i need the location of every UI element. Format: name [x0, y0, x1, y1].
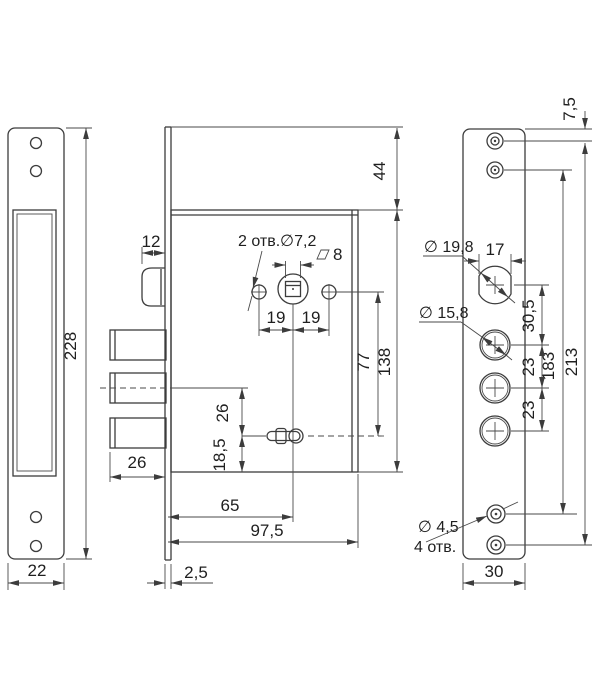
dim-label-65: 65 — [221, 496, 240, 515]
dim-label-2-5: 2,5 — [184, 563, 208, 582]
fixing-hole-right — [321, 284, 337, 300]
dim-top-offset-44: 44 — [370, 128, 397, 210]
plate-recess-inner — [17, 214, 52, 471]
screw-hole — [31, 541, 42, 552]
dim-top-hole-offset: 7,5 — [560, 97, 585, 129]
spindle-square-hole — [278, 274, 308, 304]
dim-span-outer-213: 213 — [562, 143, 585, 545]
dim-label-19-left: 19 — [267, 308, 286, 327]
dim-label-23a: 23 — [519, 358, 538, 377]
callout-screw-holes: ∅ 4,5 4 отв. — [414, 502, 518, 556]
top-screw-hole-1 — [487, 133, 503, 149]
dim-plate-height: 228 — [61, 128, 92, 559]
dim-label-26-throw: 26 — [128, 453, 147, 472]
round-hole-2 — [480, 373, 510, 403]
dim-label-8: 8 — [333, 245, 342, 264]
callout-label-19-8: ∅ 19,8 — [424, 239, 474, 256]
keyhole — [267, 429, 303, 444]
dim-backset-65: 65 — [168, 496, 293, 517]
front-plate-view: 228 22 — [8, 128, 92, 590]
dim-label-44: 44 — [370, 162, 389, 181]
callout-label-15-8: ∅ 15,8 — [419, 305, 469, 322]
screw-hole — [31, 138, 42, 149]
dim-label-17: 17 — [486, 240, 505, 259]
dim-label-77: 77 — [354, 353, 373, 372]
dim-bolt-throw: 26 — [110, 452, 165, 482]
dim-label-23b: 23 — [519, 401, 538, 420]
screw-hole — [31, 512, 42, 523]
screw-hole — [31, 166, 42, 177]
top-screw-hole-2 — [487, 162, 503, 178]
dim-cylinder-pitch-30-5: 30,5 — [519, 285, 542, 345]
dim-latch-protrusion: 12 — [142, 232, 165, 264]
bottom-screw-hole-2 — [487, 536, 505, 554]
bottom-screw-hole-1 — [487, 505, 505, 523]
dim-label-19-right: 19 — [302, 308, 321, 327]
dim-back-plate-width: 30 — [463, 562, 525, 590]
dim-label-22: 22 — [28, 561, 47, 580]
callout-label-4otv: 4 отв. — [414, 539, 456, 556]
plate-recess-outer — [13, 210, 56, 476]
dim-hole-pitch: 19 19 — [259, 300, 329, 522]
back-plate-view: 7,5 213 183 17 ∅ 19,8 ∅ 1 — [414, 97, 592, 590]
dim-label-18-5: 18,5 — [210, 438, 229, 471]
deadbolt-1 — [110, 330, 166, 360]
dim-label-213: 213 — [562, 348, 581, 376]
lock-body-side-view: 12 2 отв.∅7,2 8 19 19 — [100, 127, 403, 589]
round-hole-1 — [480, 330, 510, 360]
dim-hole-pitch-23b: 23 — [519, 388, 542, 431]
back-plate-outline — [463, 129, 525, 559]
deadbolt-2 — [110, 373, 166, 403]
deadbolt-3 — [110, 418, 166, 448]
drawing-page: 228 22 — [0, 0, 600, 685]
dim-label-97-5: 97,5 — [250, 521, 283, 540]
dim-label-7-5: 7,5 — [560, 97, 579, 121]
dim-label-228: 228 — [61, 332, 80, 360]
dim-body-depth-97-5: 97,5 — [168, 474, 358, 548]
dim-axis-to-keyhole: 26 — [213, 388, 242, 436]
dim-label-12: 12 — [142, 232, 161, 251]
dim-faceplate-thickness: 2,5 — [147, 563, 213, 589]
round-hole-3 — [480, 416, 510, 446]
dim-label-30-5: 30,5 — [519, 299, 538, 332]
dim-plate-width: 22 — [8, 561, 64, 590]
callout-label-4-5: ∅ 4,5 — [418, 519, 459, 536]
dim-span-inner-183: 183 — [539, 170, 563, 514]
technical-drawing: 228 22 — [0, 0, 600, 685]
deadbolts — [110, 330, 166, 448]
square-section-symbol — [317, 250, 329, 259]
dim-label-26-axis: 26 — [213, 404, 232, 423]
callout-label-2otv: 2 отв.∅7,2 — [238, 233, 316, 250]
dim-label-30: 30 — [485, 562, 504, 581]
dim-keyhole-to-bottom: 18,5 — [210, 436, 242, 472]
